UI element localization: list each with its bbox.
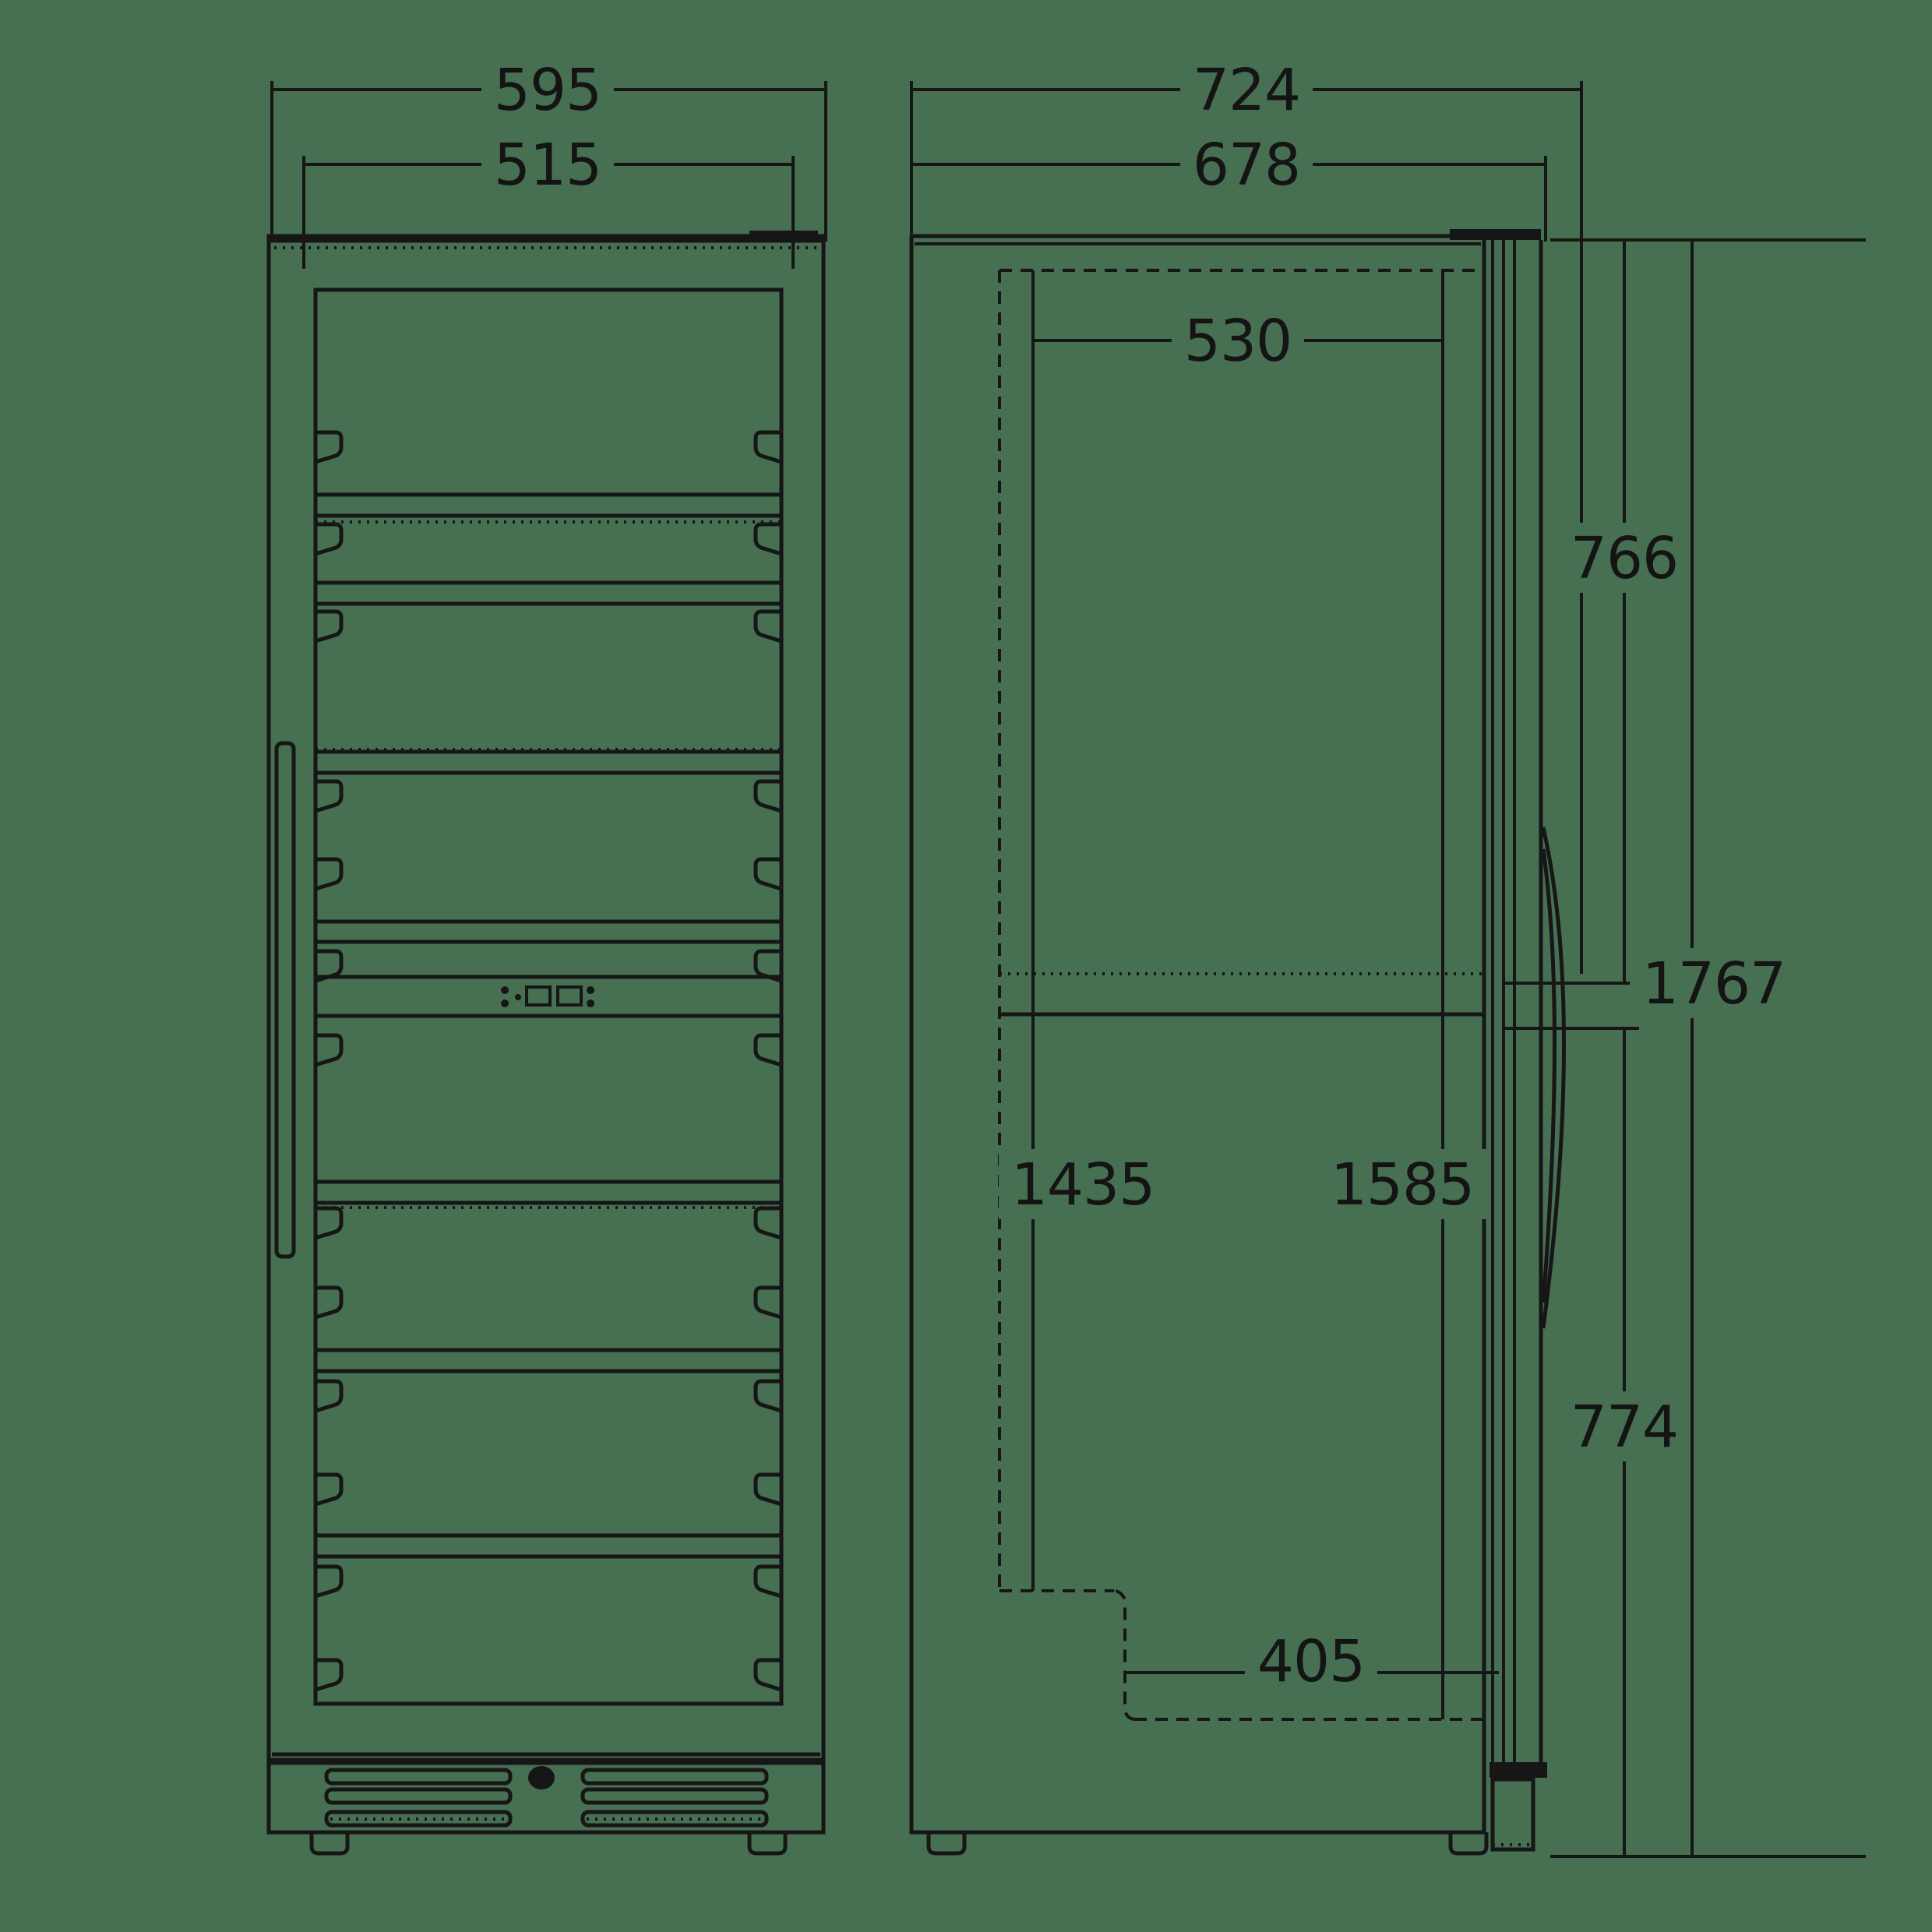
dimension-label-overall-height: 1767 [1642,950,1786,1017]
shelf-rail [316,583,781,604]
dimension-label-front-inner-width: 515 [494,132,601,199]
interior-cavity-dashed [999,270,1484,1719]
shelf-rail [316,752,781,773]
shelf-rail [316,495,781,516]
side-cabinet-outline [911,236,1484,1832]
side-door-top-cap [1450,229,1541,240]
side-door [1490,240,1547,1849]
front-top-hinge-bar [749,231,818,239]
dimension-label-front-overall-width: 595 [494,57,601,124]
shelf-rail [316,922,781,942]
display-window-icon [558,987,581,1005]
dimension-label-interior-height-back: 1435 [1011,1151,1155,1218]
led-button-dots-icon [587,999,594,1007]
side-door-bottom-bar [1490,1762,1547,1778]
led-button-dots-icon [501,986,509,994]
dimension-label-side-overall-depth: 724 [1193,57,1300,124]
led-dot-icon [515,994,521,1000]
dimension-label-interior-height-front: 1585 [1331,1151,1474,1218]
side-view [911,229,1564,1853]
dimension-labels: 595 515 724 678 530 1435 1585 766 774 17… [481,55,1798,1696]
side-foot-front [1451,1832,1486,1853]
side-door-lower-block [1493,1779,1533,1849]
dimension-label-base-interior-depth: 405 [1257,1628,1365,1695]
cooler-dimension-diagram: 595 515 724 678 530 1435 1585 766 774 17… [0,0,1932,1932]
side-foot-back [929,1832,964,1853]
led-button-dots-icon [501,999,509,1007]
front-shelf-clips [316,432,781,1690]
dimension-label-top-to-handle: 766 [1571,525,1678,592]
shelf-rail [316,1535,781,1557]
control-panel [316,977,781,1016]
front-shelf-rails [316,495,781,1557]
drawing-canvas: 595 515 724 678 530 1435 1585 766 774 17… [0,0,1932,1932]
shelf-rail [316,1350,781,1371]
display-window-icon [527,987,550,1005]
front-door-handle [277,743,294,1257]
keyhole-lock-icon [528,1766,555,1789]
front-base [269,1754,823,1853]
dimension-label-handle-to-floor: 774 [1571,1394,1678,1461]
shelf-rail [316,1182,781,1203]
front-cabinet-outline [269,236,823,1832]
front-view [269,231,823,1853]
front-foot-left [312,1832,347,1853]
front-foot-right [749,1832,785,1853]
control-panel-icons [501,986,594,1007]
dimension-label-side-interior-depth: 530 [1184,308,1292,375]
dimension-label-side-door-depth: 678 [1193,132,1300,199]
led-button-dots-icon [587,986,594,994]
side-door-handle [1543,827,1564,1328]
